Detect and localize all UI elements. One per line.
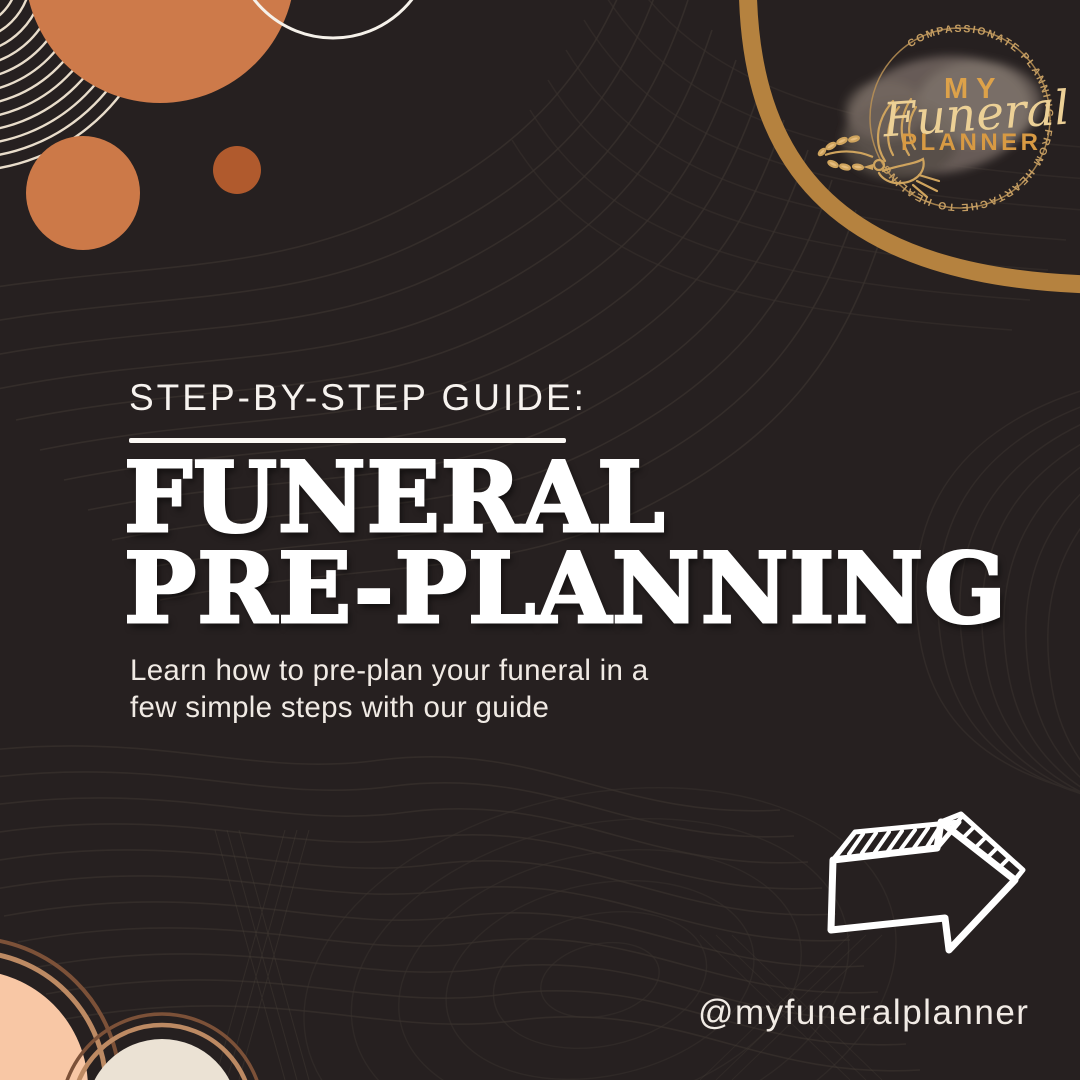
title-line-1: FUNERAL bbox=[124, 452, 1007, 543]
circle-terracotta-large bbox=[25, 0, 295, 103]
circle-terracotta-medium bbox=[26, 136, 140, 250]
brand-word-planner: PLANNER bbox=[901, 129, 1042, 157]
sketch-arrow-icon bbox=[815, 788, 1030, 968]
page-title: FUNERAL PRE-PLANNING bbox=[124, 452, 1007, 634]
poster-canvas: COMPASSIONATE PLANNING: FROM HEARTACHE T… bbox=[0, 0, 1080, 1080]
instagram-handle: @myfuneralplanner bbox=[698, 993, 1029, 1033]
title-line-2: PRE-PLANNING bbox=[124, 543, 1007, 634]
ringed-circle-peach bbox=[0, 938, 120, 1080]
brand-logo-badge: COMPASSIONATE PLANNING: FROM HEARTACHE T… bbox=[815, 15, 1075, 235]
subtitle: Learn how to pre-plan your funeral in a … bbox=[130, 652, 648, 727]
circle-rust-small bbox=[213, 146, 261, 194]
kicker-text: STEP-BY-STEP GUIDE: bbox=[129, 377, 587, 419]
subtitle-line-1: Learn how to pre-plan your funeral in a bbox=[130, 652, 648, 689]
subtitle-line-2: few simple steps with our guide bbox=[130, 689, 648, 726]
